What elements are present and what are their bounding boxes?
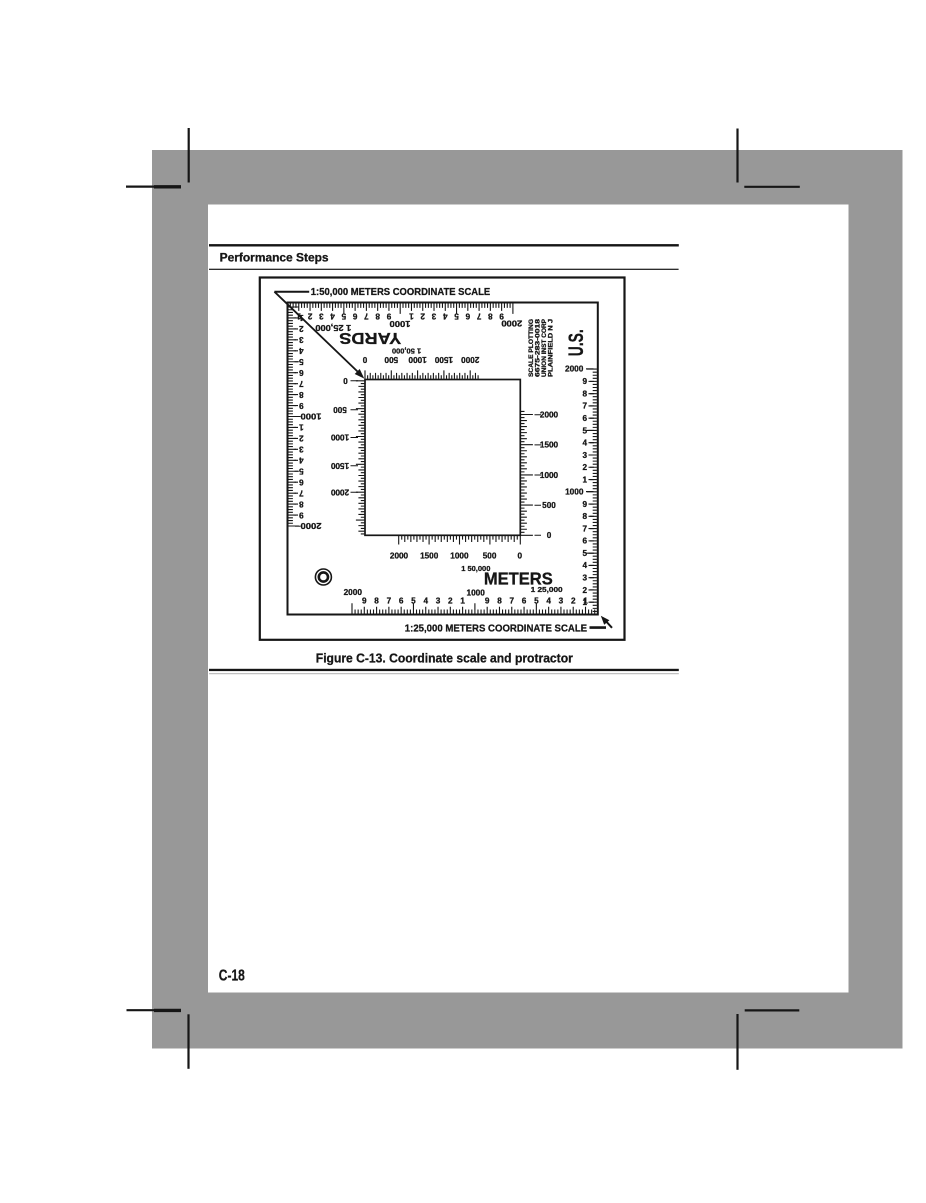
svg-text:9: 9 xyxy=(299,510,304,519)
svg-text:0: 0 xyxy=(362,355,367,364)
svg-text:5: 5 xyxy=(299,357,304,366)
svg-text:2: 2 xyxy=(307,311,312,320)
svg-text:3: 3 xyxy=(583,451,588,460)
svg-text:9: 9 xyxy=(583,500,588,509)
svg-text:0: 0 xyxy=(343,376,348,385)
svg-text:2000: 2000 xyxy=(565,364,584,374)
svg-text:5: 5 xyxy=(411,596,416,605)
svg-text:1500: 1500 xyxy=(330,461,349,470)
svg-text:7: 7 xyxy=(299,488,304,497)
svg-text:UNION INST CORP: UNION INST CORP xyxy=(542,319,548,377)
svg-text:7: 7 xyxy=(299,379,304,388)
svg-text:0: 0 xyxy=(547,531,552,540)
svg-text:8: 8 xyxy=(374,596,379,605)
svg-text:3: 3 xyxy=(583,573,588,582)
svg-text:5: 5 xyxy=(341,311,346,320)
svg-text:6: 6 xyxy=(299,477,304,486)
svg-text:5: 5 xyxy=(454,311,459,320)
svg-text:8: 8 xyxy=(299,390,304,399)
svg-text:2: 2 xyxy=(583,463,588,472)
svg-text:6: 6 xyxy=(352,311,357,320)
svg-text:8: 8 xyxy=(299,499,304,508)
svg-text:1:25,000 METERS COORDINATE SCA: 1:25,000 METERS COORDINATE SCALE xyxy=(405,624,587,635)
svg-text:5: 5 xyxy=(583,426,588,435)
svg-text:4: 4 xyxy=(583,439,588,448)
svg-text:9: 9 xyxy=(485,596,490,605)
svg-text:1: 1 xyxy=(299,313,304,322)
svg-text:1: 1 xyxy=(460,596,465,605)
svg-text:7: 7 xyxy=(583,524,588,533)
svg-text:500: 500 xyxy=(483,551,497,560)
svg-text:1 25,000: 1 25,000 xyxy=(315,323,352,332)
svg-text:Performance Steps: Performance Steps xyxy=(220,253,329,265)
svg-text:1000: 1000 xyxy=(389,319,410,329)
svg-text:4: 4 xyxy=(443,311,448,320)
svg-text:SCALE PLOTTING: SCALE PLOTTING xyxy=(529,319,535,377)
svg-text:6: 6 xyxy=(583,537,588,546)
svg-text:3: 3 xyxy=(299,445,304,454)
svg-text:1:50,000 METERS COORDINATE SCA: 1:50,000 METERS COORDINATE SCALE xyxy=(311,287,491,298)
svg-text:3: 3 xyxy=(559,596,564,605)
svg-text:2: 2 xyxy=(448,596,453,605)
svg-text:2000: 2000 xyxy=(540,411,559,420)
svg-text:0: 0 xyxy=(518,551,523,560)
svg-text:8: 8 xyxy=(375,311,380,320)
svg-text:1000: 1000 xyxy=(300,412,321,422)
svg-text:1500: 1500 xyxy=(420,551,439,560)
svg-text:2000: 2000 xyxy=(390,551,409,560)
svg-text:6: 6 xyxy=(299,368,304,377)
svg-text:4: 4 xyxy=(546,596,551,605)
svg-text:9: 9 xyxy=(583,377,588,386)
svg-text:5: 5 xyxy=(583,549,588,558)
svg-text:1: 1 xyxy=(583,475,588,484)
svg-text:1000: 1000 xyxy=(408,355,427,364)
svg-text:C-18: C-18 xyxy=(219,968,245,985)
svg-text:5: 5 xyxy=(299,466,304,475)
svg-text:8: 8 xyxy=(488,311,493,320)
svg-text:U.S.: U.S. xyxy=(565,329,588,356)
svg-text:6675-283-0018: 6675-283-0018 xyxy=(536,318,542,377)
svg-text:6: 6 xyxy=(465,311,470,320)
svg-text:500: 500 xyxy=(542,501,556,510)
svg-text:4: 4 xyxy=(330,311,335,320)
svg-text:1 25,000: 1 25,000 xyxy=(531,585,563,594)
svg-text:500: 500 xyxy=(333,405,347,414)
svg-text:1500: 1500 xyxy=(434,355,453,364)
svg-text:1000: 1000 xyxy=(466,587,485,597)
svg-text:7: 7 xyxy=(583,402,588,411)
svg-text:2: 2 xyxy=(583,586,588,595)
svg-text:2: 2 xyxy=(420,311,425,320)
svg-text:8: 8 xyxy=(583,512,588,521)
svg-text:9: 9 xyxy=(362,596,367,605)
svg-text:8: 8 xyxy=(497,596,502,605)
svg-text:1000: 1000 xyxy=(565,486,584,496)
svg-text:3: 3 xyxy=(299,335,304,344)
svg-text:2000: 2000 xyxy=(501,318,522,328)
svg-text:1 50,000: 1 50,000 xyxy=(392,346,421,355)
svg-text:500: 500 xyxy=(384,355,398,364)
svg-text:7: 7 xyxy=(364,311,369,320)
svg-text:3: 3 xyxy=(319,311,324,320)
svg-text:9: 9 xyxy=(299,401,304,410)
svg-text:1000: 1000 xyxy=(330,433,349,442)
svg-text:1: 1 xyxy=(583,598,588,607)
svg-text:4: 4 xyxy=(583,561,588,570)
svg-text:6: 6 xyxy=(583,414,588,423)
svg-text:2000: 2000 xyxy=(300,521,321,531)
svg-text:1: 1 xyxy=(299,423,304,432)
svg-text:3: 3 xyxy=(431,311,436,320)
svg-text:Figure C-13. Coordinate scale: Figure C-13. Coordinate scale and protra… xyxy=(316,651,573,665)
svg-text:4: 4 xyxy=(299,346,304,355)
svg-text:PLAINFIELD N J: PLAINFIELD N J xyxy=(549,319,555,377)
svg-text:7: 7 xyxy=(509,596,514,605)
svg-text:1500: 1500 xyxy=(540,441,559,450)
svg-text:1000: 1000 xyxy=(540,471,559,480)
svg-text:3: 3 xyxy=(436,596,441,605)
svg-text:2000: 2000 xyxy=(344,587,363,597)
svg-text:7: 7 xyxy=(476,311,481,320)
svg-text:4: 4 xyxy=(299,455,304,464)
svg-text:8: 8 xyxy=(583,389,588,398)
svg-text:6: 6 xyxy=(522,596,527,605)
svg-text:2000: 2000 xyxy=(330,487,349,496)
svg-text:2: 2 xyxy=(571,596,576,605)
svg-text:6: 6 xyxy=(399,596,404,605)
svg-text:5: 5 xyxy=(534,596,539,605)
svg-text:4: 4 xyxy=(423,596,428,605)
svg-text:1000: 1000 xyxy=(450,551,469,560)
svg-text:2: 2 xyxy=(299,324,304,333)
svg-text:2000: 2000 xyxy=(461,355,480,364)
svg-text:2: 2 xyxy=(299,434,304,443)
svg-text:7: 7 xyxy=(387,596,392,605)
